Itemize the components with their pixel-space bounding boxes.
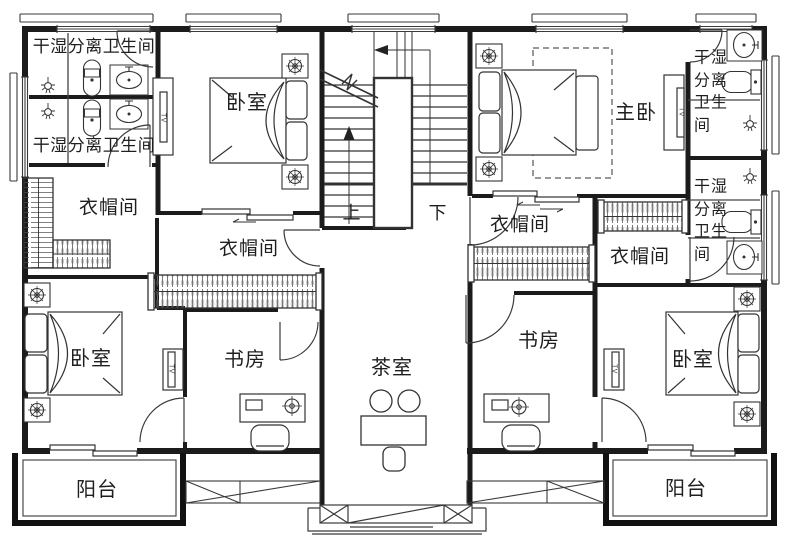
- floor-plan-linework: [0, 0, 789, 545]
- label-bathroom-top-left-2: 干湿分离卫生间: [33, 135, 156, 157]
- label-balcony-left: 阳台: [76, 477, 118, 503]
- stairs-up-arrow: [344, 126, 355, 140]
- label-stairs-up: 上: [343, 202, 362, 226]
- staircase: [320, 32, 467, 228]
- label-tv-top-left: TV: [160, 113, 167, 123]
- bay-window: [308, 505, 486, 534]
- label-bedroom-bottom-left: 卧室: [70, 346, 112, 372]
- label-master-bedroom: 主卧: [615, 100, 657, 126]
- stairs-down-arrow: [374, 45, 388, 55]
- label-balcony-right: 阳台: [665, 476, 707, 502]
- roof-band-left: [186, 481, 320, 503]
- label-closet-right-inner: 衣帽间: [490, 212, 550, 237]
- roof-band-right: [467, 481, 604, 503]
- label-tv-master: TV: [678, 107, 685, 117]
- label-tv-bottom-right: TV: [611, 364, 618, 374]
- label-stairs-down: 下: [429, 202, 448, 226]
- label-tea-room: 茶室: [371, 355, 413, 381]
- label-tv-bottom-left: TV: [168, 364, 175, 374]
- label-closet-right-outer: 衣帽间: [610, 244, 670, 269]
- label-bathroom-top-left-1: 干湿分离卫生间: [33, 36, 156, 58]
- label-bedroom-bottom-right: 卧室: [672, 347, 714, 373]
- label-study-right: 书房: [518, 328, 560, 354]
- label-closet-left-inner: 衣帽间: [219, 236, 279, 261]
- label-bedroom-top-left: 卧室: [226, 90, 268, 116]
- label-study-left: 书房: [224, 347, 266, 373]
- swing-doors: [108, 30, 734, 442]
- tea-room-furniture: [361, 390, 426, 471]
- floor-plan: 干湿分离卫生间 干湿分离卫生间 卧室 主卧 干湿 分离 卫生 间 干湿 分离 卫…: [0, 0, 789, 545]
- label-closet-left-outer: 衣帽间: [79, 195, 139, 220]
- label-bathroom-right-2: 干湿 分离 卫生 间: [694, 177, 728, 268]
- label-bathroom-right-1: 干湿 分离 卫生 间: [694, 48, 728, 139]
